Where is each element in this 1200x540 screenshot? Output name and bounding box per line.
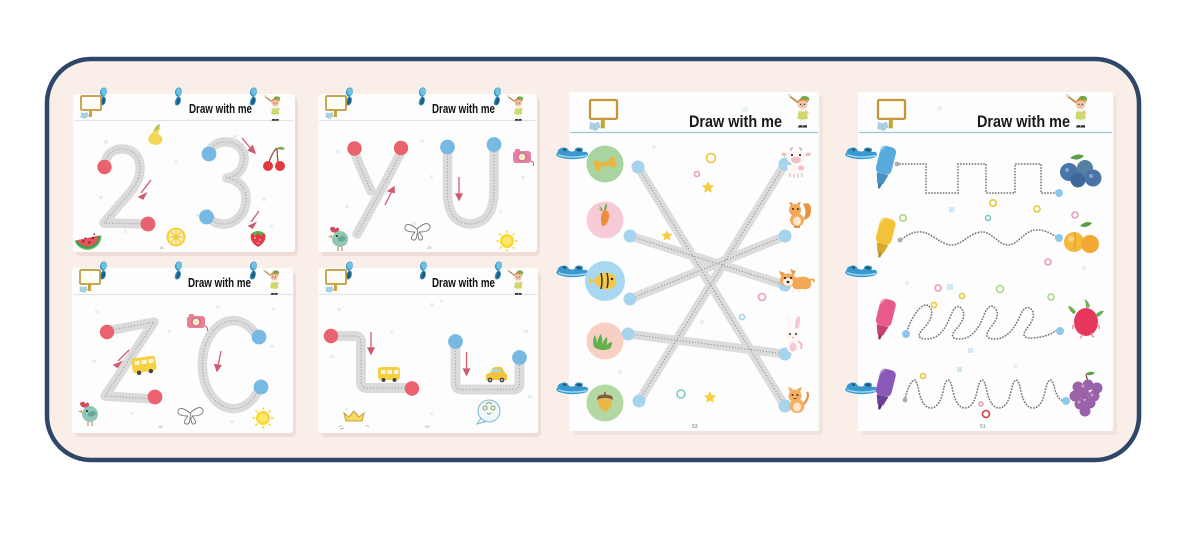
- svg-text:16: 16: [159, 245, 164, 250]
- svg-text:29: 29: [425, 424, 430, 429]
- svg-text:Draw with me: Draw with me: [189, 102, 252, 116]
- svg-text:19: 19: [427, 245, 432, 250]
- svg-text:18: 18: [158, 424, 163, 429]
- svg-text:Draw with me: Draw with me: [977, 112, 1070, 131]
- svg-text:51: 51: [980, 424, 986, 430]
- svg-text:Draw with me: Draw with me: [432, 102, 495, 116]
- svg-text:Draw with me: Draw with me: [689, 112, 782, 131]
- svg-text:53: 53: [692, 424, 698, 430]
- svg-text:Draw with me: Draw with me: [188, 276, 251, 290]
- svg-text:Draw with me: Draw with me: [432, 276, 495, 290]
